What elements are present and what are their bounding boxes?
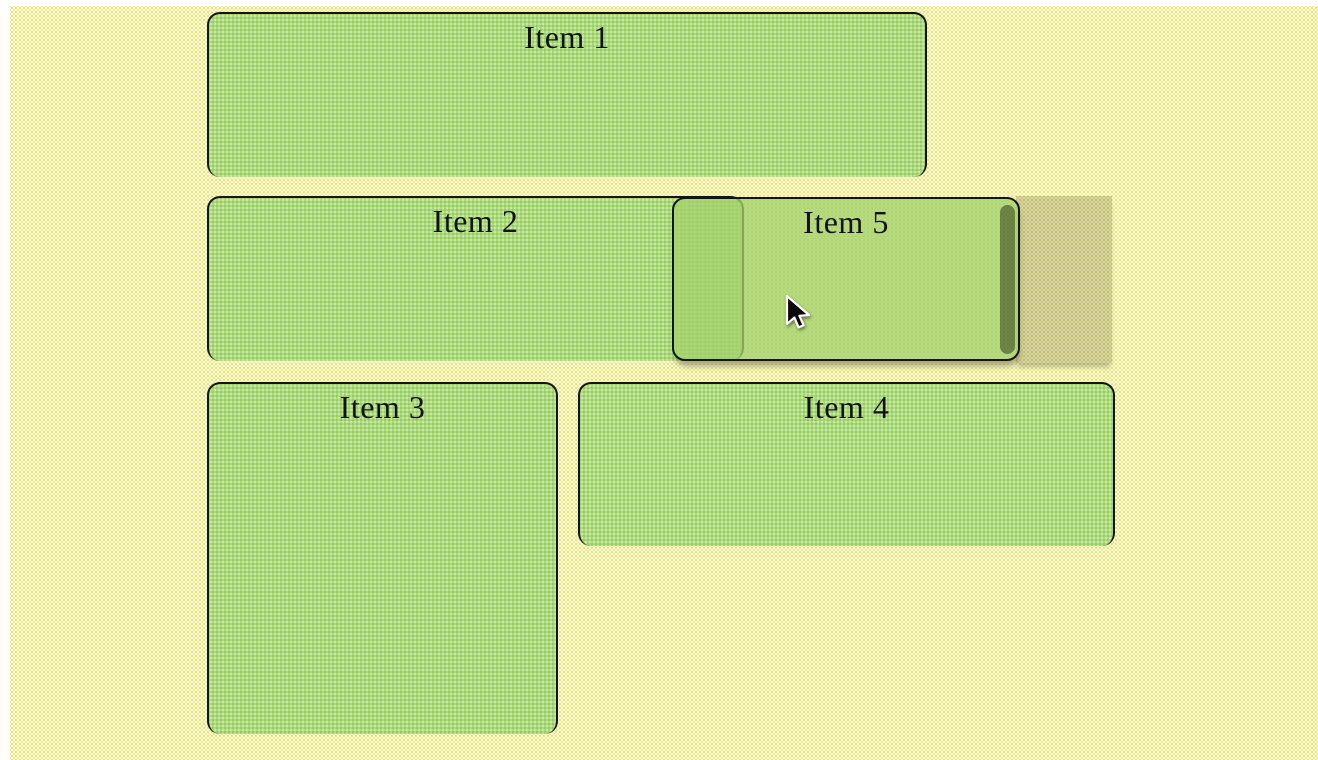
- item-2-label: Item 2: [433, 203, 519, 240]
- item-1-label: Item 1: [524, 19, 610, 56]
- item-3-label: Item 3: [340, 389, 426, 426]
- dragged-card-item-5[interactable]: Item 5: [672, 197, 1020, 361]
- draggable-card-item-1[interactable]: Item 1: [207, 12, 927, 177]
- item-4-label: Item 4: [804, 389, 890, 426]
- scrollbar-thumb[interactable]: [1000, 205, 1015, 354]
- item-5-label: Item 5: [803, 204, 889, 241]
- draggable-card-item-2[interactable]: Item 2: [207, 196, 744, 361]
- drag-placeholder-ghost: [1016, 196, 1112, 363]
- draggable-card-item-3[interactable]: Item 3: [207, 382, 558, 734]
- mouse-cursor-arrow-icon: [783, 294, 817, 339]
- draggable-card-item-4[interactable]: Item 4: [578, 382, 1115, 546]
